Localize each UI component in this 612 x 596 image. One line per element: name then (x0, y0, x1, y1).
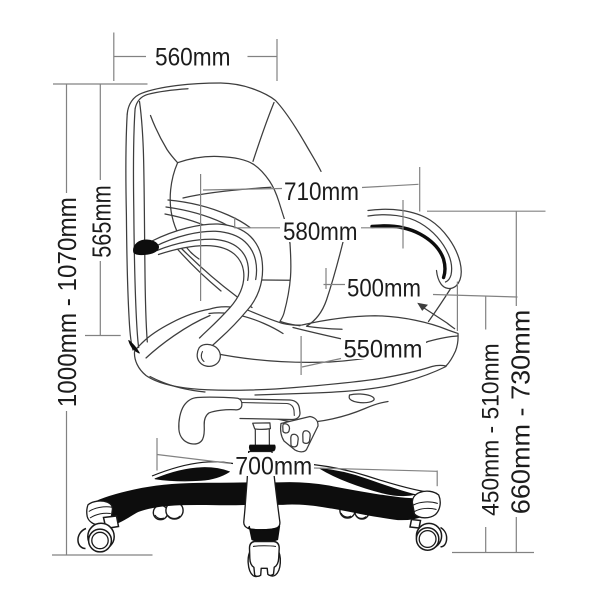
svg-text:560mm: 560mm (155, 44, 231, 72)
svg-text:660mm - 730mm: 660mm - 730mm (506, 310, 536, 515)
svg-text:565mm: 565mm (89, 185, 117, 258)
svg-text:700mm: 700mm (235, 453, 312, 481)
svg-text:1000mm - 1070mm: 1000mm - 1070mm (54, 197, 82, 407)
svg-text:500mm: 500mm (347, 275, 421, 303)
svg-text:710mm: 710mm (284, 178, 359, 206)
svg-text:450mm - 510mm: 450mm - 510mm (478, 343, 505, 516)
svg-text:550mm: 550mm (344, 336, 423, 364)
svg-text:580mm: 580mm (283, 218, 358, 246)
